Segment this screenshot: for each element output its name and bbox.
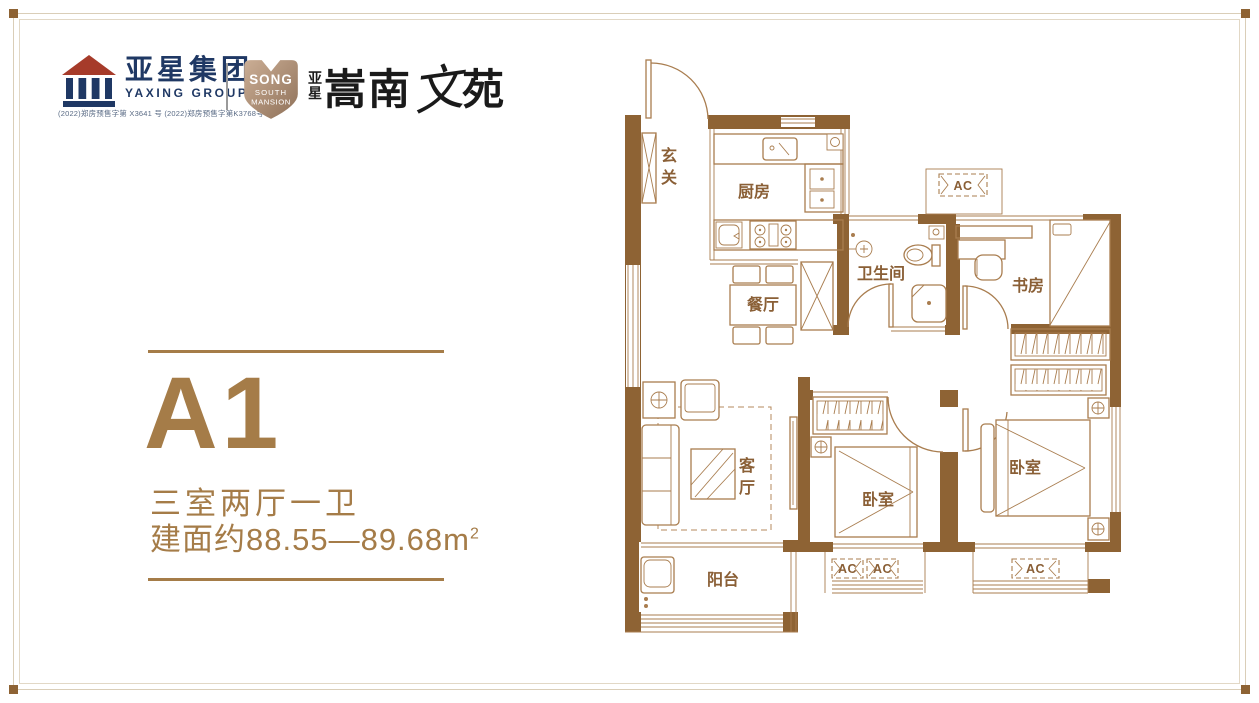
song-south-mansion-badge: SONG SOUTH MANSION: [240, 56, 302, 127]
room-label-foyer-1: 玄: [661, 146, 677, 165]
brand-prefix: 亚 星: [308, 71, 322, 102]
room-label-bed1: 卧室: [862, 490, 894, 509]
project-name-stylized: 文: [409, 62, 465, 118]
room-label-dining: 餐厅: [746, 295, 779, 314]
yaxing-name: 亚星集团: [125, 54, 253, 85]
yaxing-logo: 亚星集团® YAXING GROUP: [62, 55, 261, 107]
project-brand: 亚 星 嵩南文苑: [308, 62, 506, 112]
entrance-door: [646, 60, 708, 119]
area-prefix: 建面约: [150, 522, 246, 557]
kitchen-fixtures: [714, 134, 843, 250]
area-value: 88.55—89.68: [246, 522, 443, 557]
frame-corner-topright: [1241, 9, 1250, 18]
kitchen-window-opening: [781, 117, 815, 127]
area-unit: m: [443, 522, 470, 557]
header-divider: [226, 63, 228, 110]
frame-corner-bottomleft: [9, 685, 18, 694]
study-furniture: [956, 220, 1110, 329]
closet-wardrobes: [1011, 329, 1110, 395]
ac-label-south1: AC: [838, 562, 857, 576]
ac-label-south2: AC: [873, 562, 892, 576]
area-sup: 2: [470, 526, 480, 543]
room-label-living-2: 厅: [739, 479, 755, 497]
project-name: 嵩南文苑: [324, 62, 506, 112]
yaxing-building-icon: [62, 55, 116, 107]
project-name-post: 苑: [462, 66, 506, 113]
badge-line3: MANSION: [251, 97, 291, 106]
floorplan-drawing: 玄 关 厨房: [613, 57, 1145, 643]
divider-line-bottom: [148, 578, 444, 581]
room-label-study: 书房: [1012, 276, 1044, 295]
divider-line-top: [148, 350, 444, 353]
living-furniture: [642, 380, 797, 530]
room-label-kitchen: 厨房: [738, 182, 770, 201]
duct-shaft: [801, 262, 833, 330]
bedroom1-furniture: [811, 397, 943, 537]
brand-prefix-bottom: 星: [308, 86, 322, 101]
area-description: 建面约88.55—89.68m2: [150, 514, 480, 559]
frame-corner-bottomright: [1241, 685, 1250, 694]
room-label-bed2: 卧室: [1009, 458, 1041, 477]
ac-label-south3: AC: [1026, 562, 1045, 576]
room-label-balcony: 阳台: [707, 570, 739, 589]
frame-corner-topleft: [9, 9, 18, 18]
unit-code: A1: [144, 362, 282, 464]
room-label-bath: 卫生间: [857, 264, 905, 283]
room-label-foyer-2: 关: [661, 168, 677, 187]
poster-page: 亚星集团® YAXING GROUP (2022)郑房预售字第 X3641 号 …: [0, 0, 1259, 703]
ac-platform-top: AC: [926, 169, 1002, 214]
room-label-living-1: 客: [739, 456, 756, 475]
badge-line1: SONG: [249, 72, 293, 87]
project-name-pre: 嵩南: [324, 66, 412, 113]
brand-prefix-top: 亚: [308, 71, 322, 86]
presale-permit-text: (2022)郑房预售字第 X3641 号 (2022)郑房预售字第K3768号: [58, 108, 264, 119]
ac-platform-south2: AC: [867, 559, 898, 578]
ac-platform-south3: AC: [1012, 559, 1059, 578]
foyer-cabinet: [642, 133, 656, 203]
badge-line2: SOUTH: [255, 88, 287, 97]
balcony-fixtures: [641, 557, 674, 608]
ac-platform-south1: AC: [832, 559, 863, 578]
ac-label-top: AC: [953, 179, 972, 193]
